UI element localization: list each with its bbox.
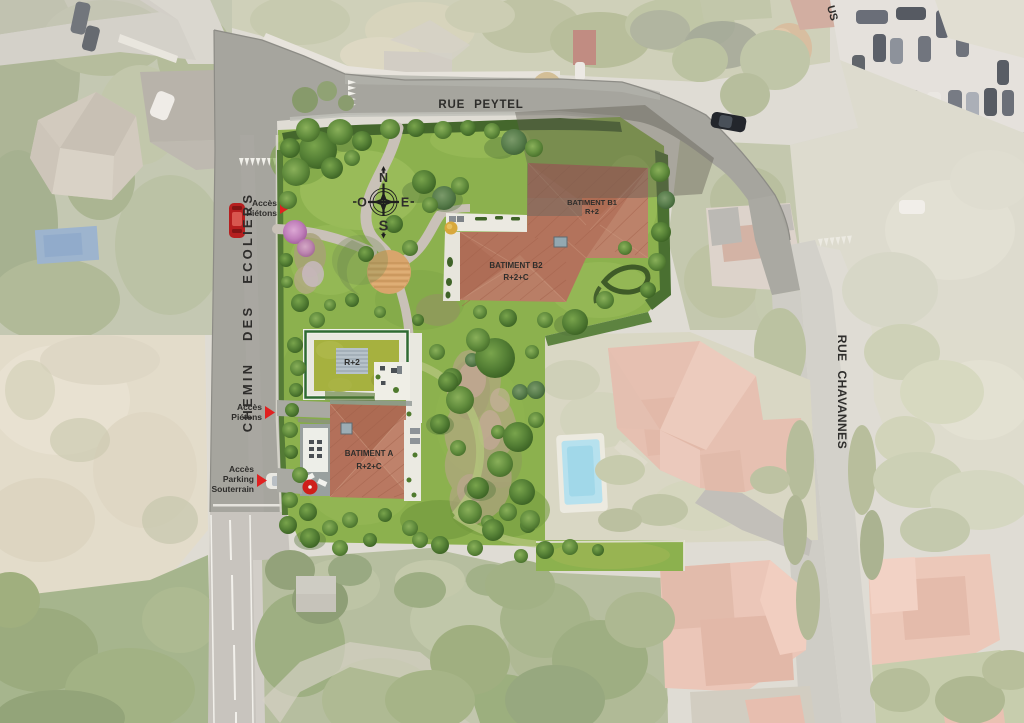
svg-text:R+2+C: R+2+C <box>503 273 529 282</box>
svg-text:R+2: R+2 <box>344 357 360 367</box>
svg-text:R+2: R+2 <box>585 207 599 216</box>
svg-text:Accès: Accès <box>252 198 277 208</box>
svg-text:N: N <box>379 171 388 185</box>
svg-text:CHEMIN DES ECOLIERS: CHEMIN DES ECOLIERS <box>240 192 255 432</box>
svg-text:Souterrain: Souterrain <box>211 484 254 494</box>
svg-text:S: S <box>379 219 389 235</box>
svg-text:O: O <box>357 196 367 210</box>
svg-text:Accès: Accès <box>229 464 254 474</box>
svg-text:E: E <box>401 196 409 210</box>
svg-text:Parking: Parking <box>223 474 254 484</box>
svg-text:RUE CHAVANNES: RUE CHAVANNES <box>835 335 849 449</box>
svg-text:BATIMENT B2: BATIMENT B2 <box>489 261 543 270</box>
svg-text:Piétons: Piétons <box>231 412 262 422</box>
svg-text:R+2+C: R+2+C <box>356 462 382 471</box>
svg-text:BATIMENT B1: BATIMENT B1 <box>567 198 617 207</box>
svg-text:RUE PEYTEL: RUE PEYTEL <box>438 99 523 111</box>
svg-text:Piétons: Piétons <box>246 208 277 218</box>
svg-text:Accès: Accès <box>237 402 262 412</box>
svg-text:BATIMENT A: BATIMENT A <box>345 449 394 458</box>
